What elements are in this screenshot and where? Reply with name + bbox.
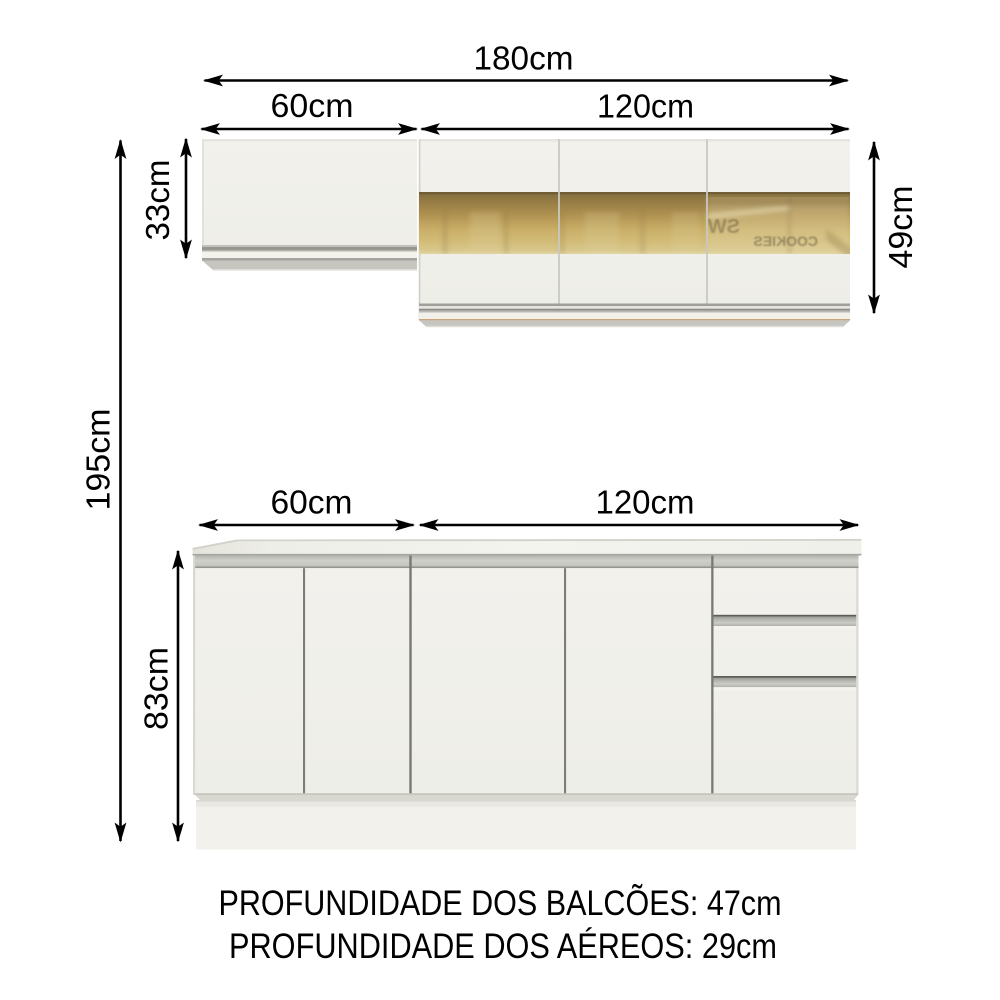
svg-text:60cm: 60cm [271,484,353,521]
svg-text:SW: SW [708,216,740,238]
svg-text:195cm: 195cm [80,409,117,511]
svg-text:83cm: 83cm [138,647,175,730]
svg-text:33cm: 33cm [139,160,176,241]
svg-text:60cm: 60cm [271,87,354,124]
svg-text:120cm: 120cm [596,484,695,521]
svg-text:180cm: 180cm [474,40,574,77]
svg-text:PROFUNDIDADE DOS AÉREOS: 29cm: PROFUNDIDADE DOS AÉREOS: 29cm [229,926,777,966]
svg-text:COOKIES: COOKIES [753,233,818,249]
svg-text:120cm: 120cm [597,88,694,125]
svg-text:PROFUNDIDADE DOS BALCÕES: 47cm: PROFUNDIDADE DOS BALCÕES: 47cm [219,883,782,923]
svg-text:49cm: 49cm [882,186,919,269]
